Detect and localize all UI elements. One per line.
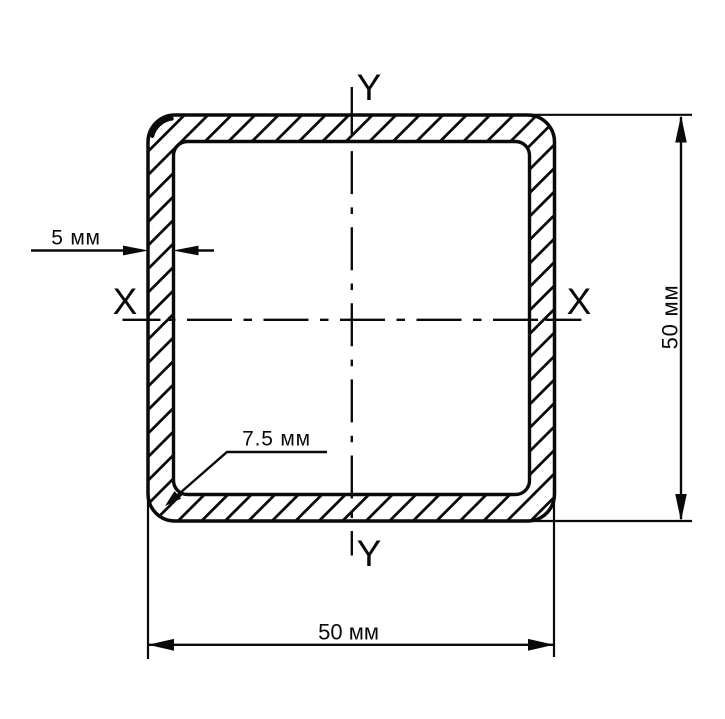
svg-text:X: X bbox=[113, 281, 138, 322]
svg-text:Y: Y bbox=[357, 533, 382, 574]
svg-text:X: X bbox=[567, 281, 592, 322]
svg-text:Y: Y bbox=[357, 67, 382, 108]
svg-text:50 мм: 50 мм bbox=[658, 285, 683, 350]
svg-text:5 мм: 5 мм bbox=[51, 227, 101, 250]
svg-text:50 мм: 50 мм bbox=[318, 620, 379, 645]
svg-text:7.5 мм: 7.5 мм bbox=[242, 428, 311, 451]
